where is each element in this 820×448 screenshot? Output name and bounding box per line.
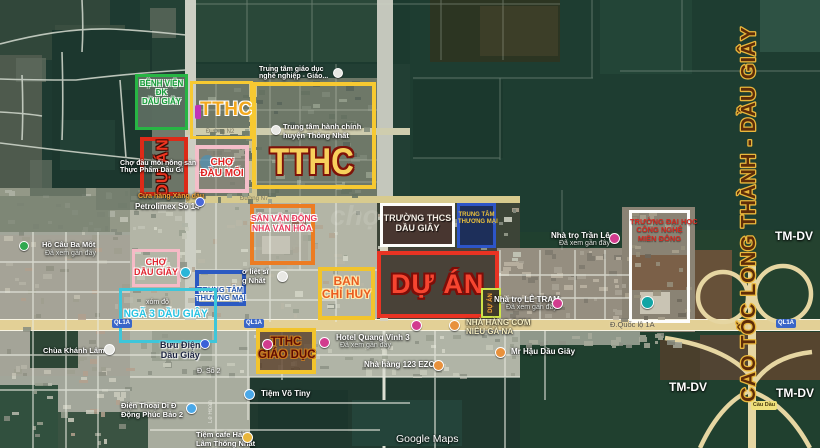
svg-text:CAO TỐC LONG THÀNH - DẦU GIÂY: CAO TỐC LONG THÀNH - DẦU GIÂY <box>736 26 760 402</box>
